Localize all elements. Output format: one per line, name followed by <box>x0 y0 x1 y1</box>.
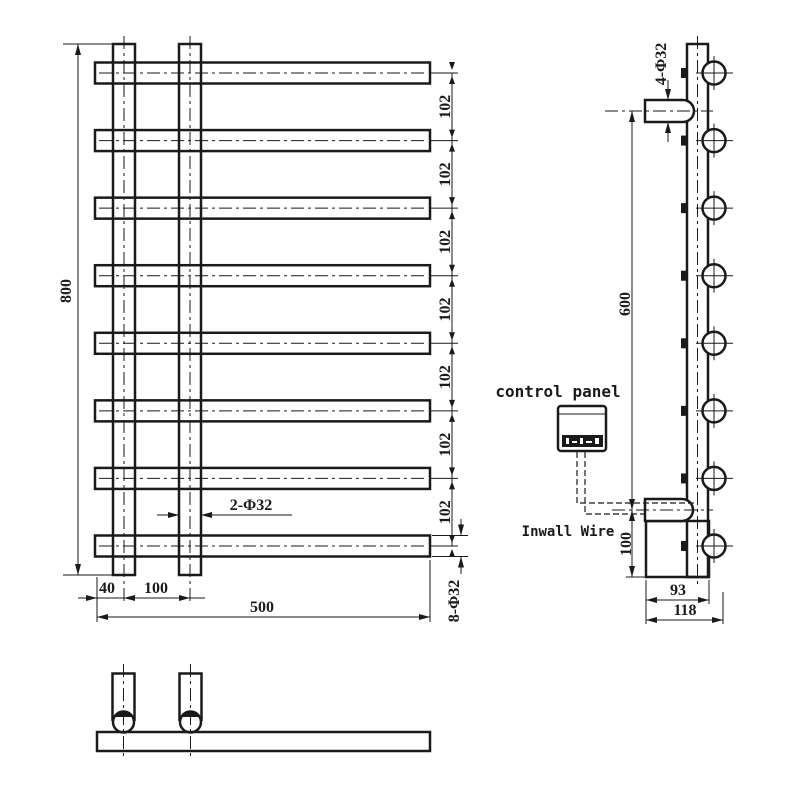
arrowhead <box>629 566 635 577</box>
arrowhead <box>75 44 81 55</box>
arrowhead <box>646 617 657 623</box>
dim-label-102: 102 <box>437 95 454 119</box>
dim-label-100: 100 <box>144 580 168 597</box>
bar-weld-stub <box>681 406 687 416</box>
arrowhead <box>629 510 635 521</box>
arrowhead <box>168 512 179 518</box>
inwall-wire-label: Inwall Wire <box>522 524 615 540</box>
dim-label-8-d32: 8-Φ32 <box>446 580 463 623</box>
drawing-canvas: 800 102102102102102102102 2-Φ32 8-Φ32 40 <box>0 0 800 800</box>
dim-tick <box>449 144 455 152</box>
arrowhead <box>75 564 81 575</box>
dim-tick <box>449 346 455 354</box>
dim-label-4-d32: 4-Φ32 <box>653 43 670 86</box>
arrowhead <box>458 557 464 568</box>
side-view: 4-Φ32 600 100 93 118 control panel <box>495 36 733 624</box>
dim-tick <box>449 197 455 205</box>
arrowhead <box>124 595 135 601</box>
control-panel-label: control panel <box>495 382 620 401</box>
bottom-housing <box>646 521 709 577</box>
arrowhead <box>698 597 709 603</box>
bar-weld-stub <box>681 136 687 146</box>
arrowhead <box>629 111 635 122</box>
dim-label-40: 40 <box>99 580 115 597</box>
dim-label-102: 102 <box>437 162 454 186</box>
dim-tick <box>449 481 455 489</box>
arrowhead <box>419 614 430 620</box>
dim-bottom-widths: 40 100 500 <box>78 560 430 622</box>
arrowhead <box>665 89 671 100</box>
bar-weld-stub <box>681 473 687 483</box>
dim-label-102: 102 <box>437 230 454 254</box>
dim-side-depths: 93 118 <box>646 580 723 624</box>
dim-label-102: 102 <box>437 433 454 457</box>
dim-label-102: 102 <box>437 500 454 524</box>
dim-tick <box>449 279 455 287</box>
front-view-bars <box>95 63 430 557</box>
arrowhead <box>712 617 723 623</box>
arrowhead <box>629 499 635 510</box>
bar-weld-stub <box>681 271 687 281</box>
display-segment <box>572 441 577 443</box>
bar-weld-stub <box>681 68 687 78</box>
dim-tick <box>449 130 455 138</box>
arrowhead <box>86 595 97 601</box>
dim-label-2-d32: 2-Φ32 <box>230 497 273 514</box>
dim-label-93: 93 <box>670 582 686 599</box>
dim-tick <box>449 549 455 557</box>
dim-tick <box>449 400 455 408</box>
bar-weld-stub <box>681 541 687 551</box>
dim-tick <box>449 265 455 273</box>
dim-bar-spacing-chain: 102102102102102102102 <box>430 62 458 557</box>
arrowhead <box>97 614 108 620</box>
dim-overall-height: 800 <box>58 44 135 575</box>
dim-tick <box>449 76 455 84</box>
arrowhead <box>665 122 671 133</box>
arrowhead <box>201 512 212 518</box>
arrowhead <box>179 595 190 601</box>
dim-tick <box>449 211 455 219</box>
dim-label-500: 500 <box>250 599 274 616</box>
dim-label-600: 600 <box>617 292 634 316</box>
bottom-view-bar <box>97 732 430 751</box>
wire-line-2 <box>585 452 649 514</box>
display-segment <box>580 438 583 444</box>
front-view: 800 102102102102102102102 2-Φ32 8-Φ32 40 <box>58 36 468 622</box>
dim-tick <box>449 467 455 475</box>
towel-radiator-technical-drawing: 800 102102102102102102102 2-Φ32 8-Φ32 40 <box>0 0 800 800</box>
bar-weld-stub <box>681 338 687 348</box>
dim-label-102: 102 <box>437 365 454 389</box>
dim-tick <box>449 332 455 340</box>
wire-line-1 <box>577 452 697 503</box>
bar-weld-stub <box>681 203 687 213</box>
bottom-view <box>97 664 430 757</box>
dim-tick <box>449 535 455 543</box>
dim-label-102: 102 <box>437 298 454 322</box>
dim-tick <box>449 62 455 70</box>
dim-label-800: 800 <box>58 279 75 303</box>
display-segment <box>566 438 569 444</box>
dim-bar-diameter: 8-Φ32 <box>432 519 468 622</box>
dim-label-100-side: 100 <box>618 532 635 556</box>
arrowhead <box>646 597 657 603</box>
dim-tick <box>449 414 455 422</box>
dim-post-diameter: 2-Φ32 <box>157 497 292 515</box>
display-segment <box>586 441 592 443</box>
arrowhead <box>458 525 464 536</box>
display-segment <box>595 438 599 444</box>
dim-label-118: 118 <box>673 602 696 619</box>
